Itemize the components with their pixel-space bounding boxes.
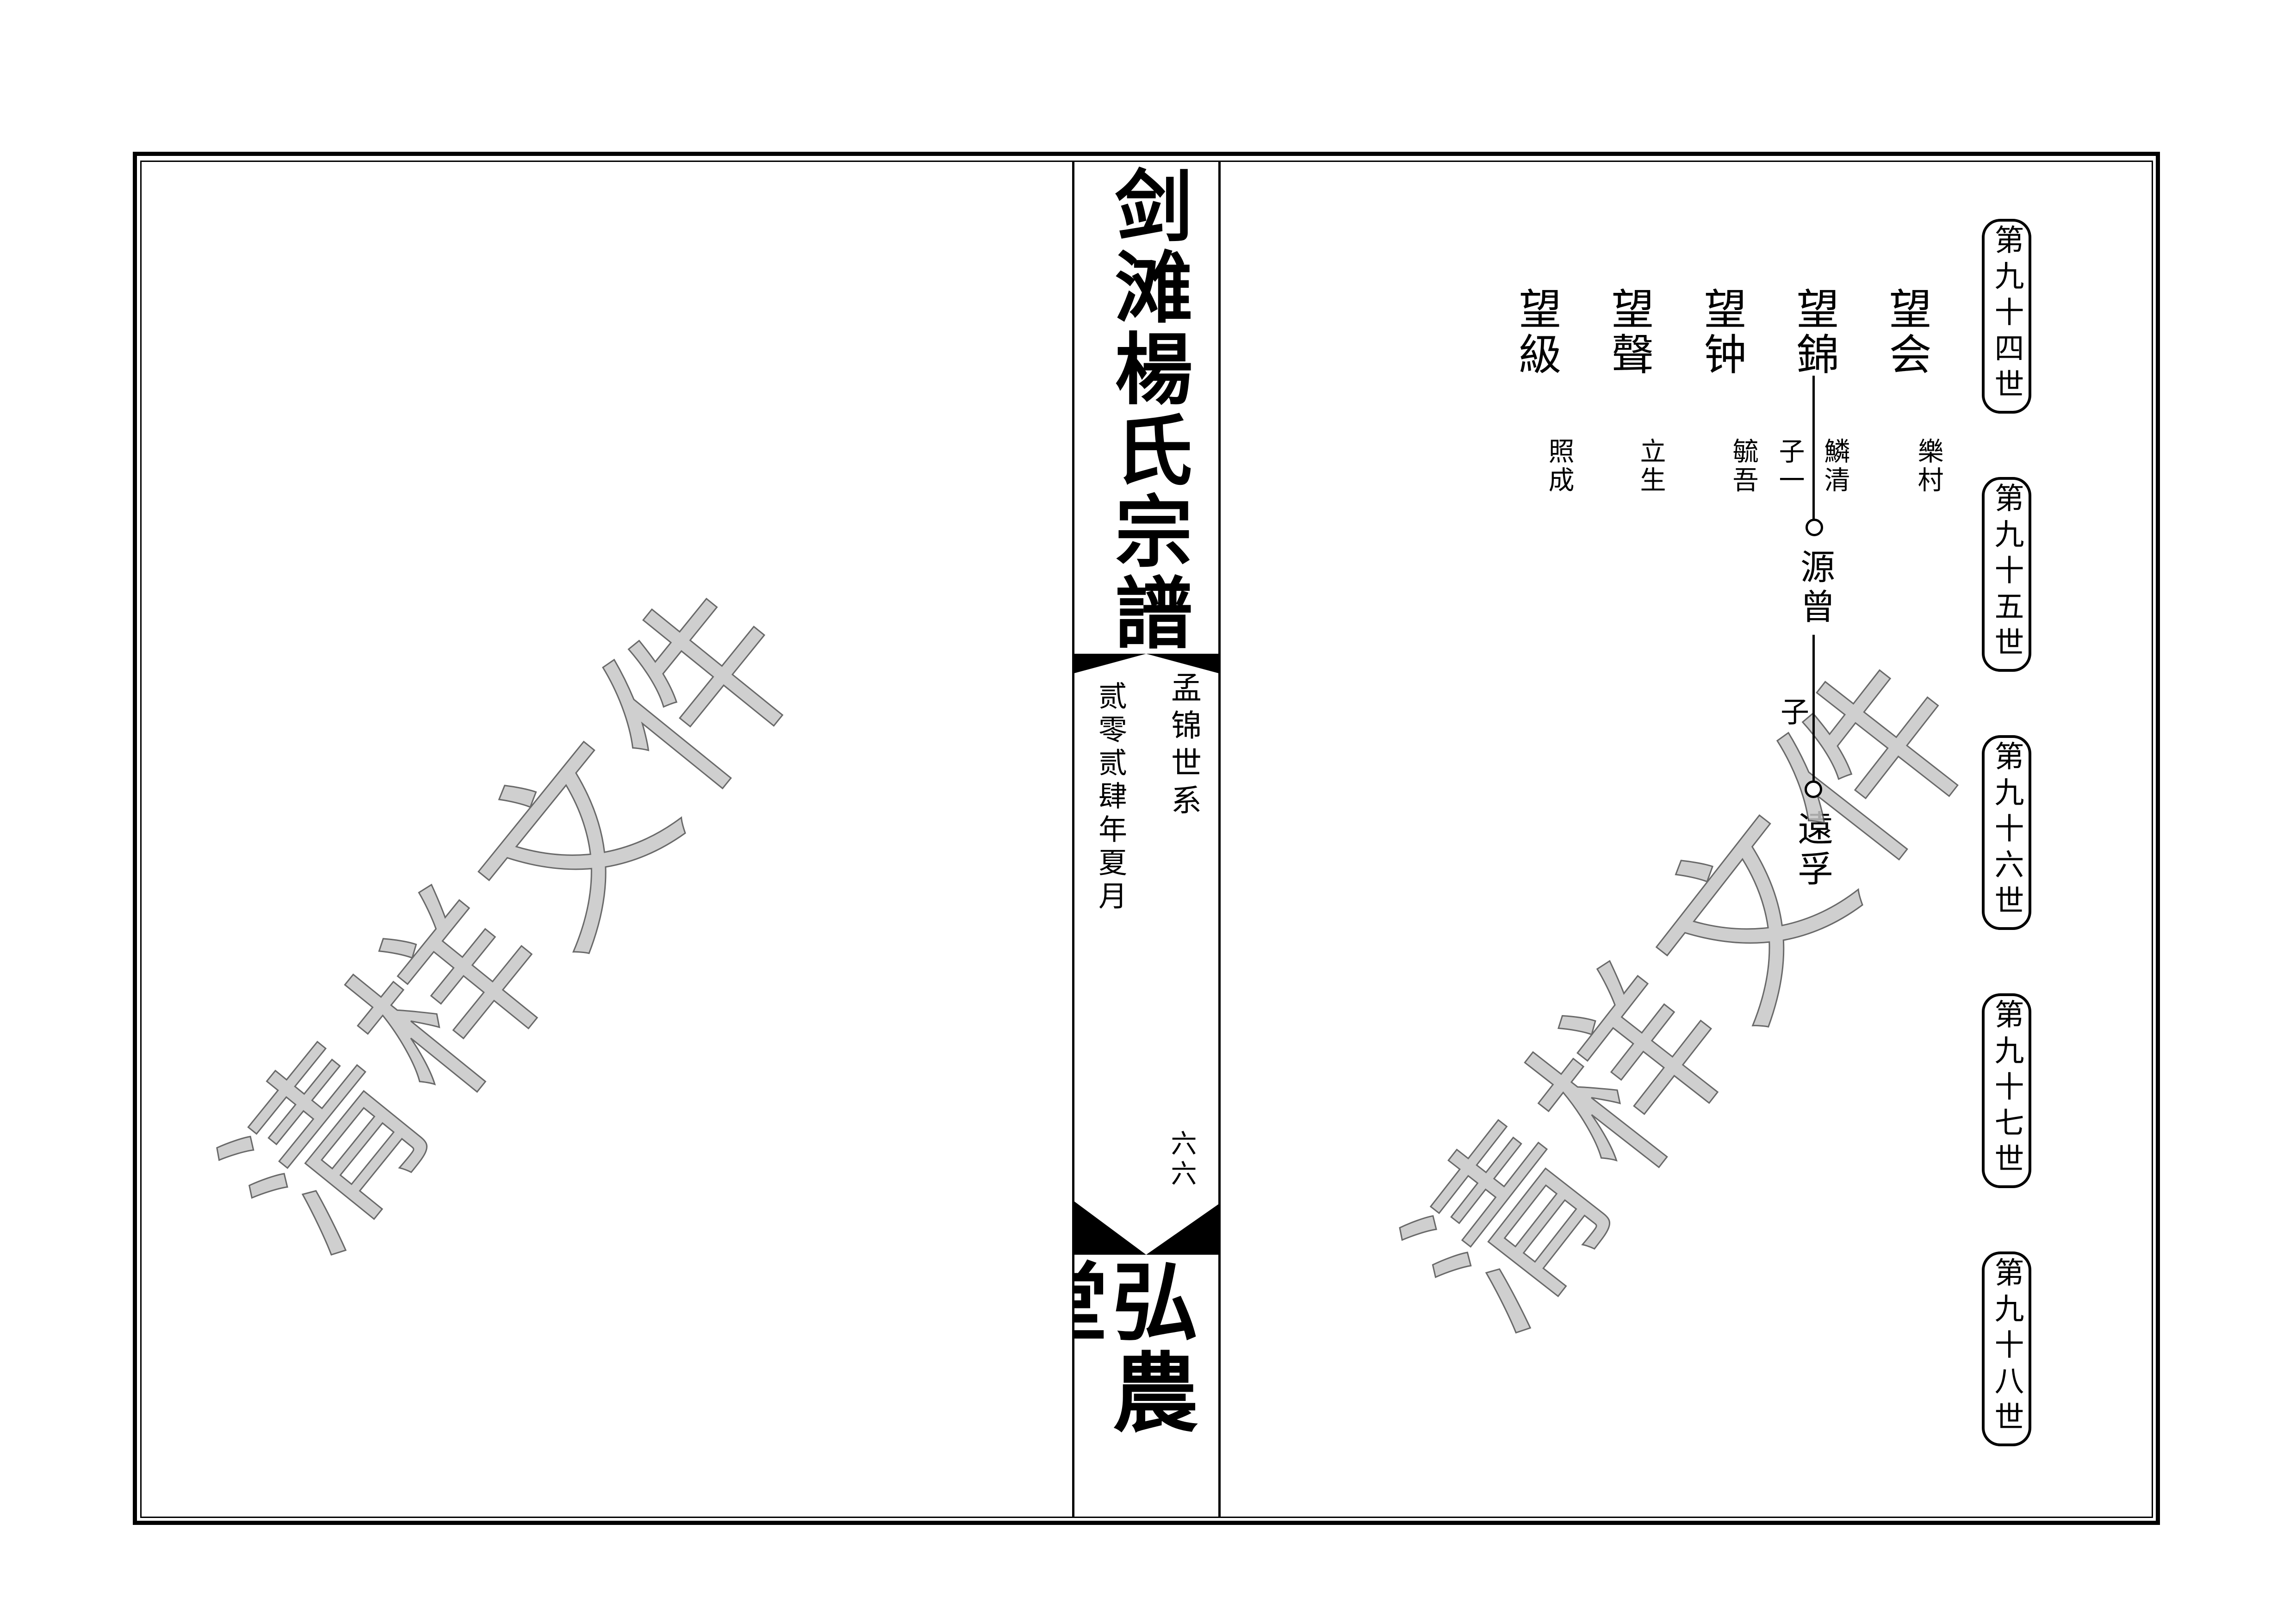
spine-date-label: 贰零贰肆年夏月 bbox=[1095, 681, 1124, 914]
person-name: 望級 bbox=[1513, 287, 1559, 378]
courtesy-name: 子一 bbox=[1776, 438, 1803, 495]
person-name: 望会 bbox=[1883, 287, 1930, 378]
descendant-name: 遠孚 bbox=[1794, 810, 1831, 891]
descent-line bbox=[1812, 635, 1815, 782]
spine-hall-name-clip: 弘農堂 bbox=[1074, 1256, 1219, 1518]
spine-lineage-label: 孟锦世系 bbox=[1167, 672, 1199, 822]
generation-label: 第九十七世 bbox=[1986, 999, 2028, 1185]
generation-label: 第九十五世 bbox=[1986, 483, 2028, 669]
person-name: 望聲 bbox=[1606, 287, 1652, 378]
generation-label: 第九十四世 bbox=[1986, 224, 2028, 411]
node-circle-icon bbox=[1805, 781, 1822, 798]
person-name: 望钟 bbox=[1698, 287, 1744, 378]
generation-label-box: 第九十六世 bbox=[1982, 735, 2031, 930]
generation-label-box: 第九十五世 bbox=[1982, 477, 2031, 672]
descent-line bbox=[1812, 376, 1815, 519]
courtesy-name: 照成 bbox=[1545, 438, 1572, 495]
genealogy-page-spread: 清样文件 剑滩楊氏宗譜 孟锦世系 贰零贰肆年夏月 六六 弘農堂 望会 望錦 望钟… bbox=[0, 0, 2296, 1623]
spine-page-number: 六六 bbox=[1168, 1130, 1195, 1190]
generation-label-box: 第九十四世 bbox=[1982, 219, 2031, 414]
node-circle-icon bbox=[1806, 519, 1823, 536]
spine-hall-name: 弘農堂 bbox=[1101, 1257, 1192, 1518]
courtesy-name: 樂村 bbox=[1915, 438, 1942, 495]
courtesy-name: 毓吾 bbox=[1730, 438, 1756, 495]
generation-label: 第九十八世 bbox=[1986, 1257, 2028, 1443]
person-name: 望錦 bbox=[1791, 287, 1837, 378]
spine-title: 剑滩楊氏宗譜 bbox=[1092, 166, 1200, 654]
courtesy-name: 鱗清 bbox=[1821, 438, 1848, 495]
generation-label: 第九十六世 bbox=[1986, 741, 2028, 927]
descendant-side-note: 子 bbox=[1777, 697, 1806, 725]
courtesy-name: 立生 bbox=[1637, 438, 1664, 495]
generation-label-box: 第九十八世 bbox=[1982, 1251, 2031, 1446]
descendant-name: 源曾 bbox=[1795, 549, 1832, 628]
generation-label-box: 第九十七世 bbox=[1982, 993, 2031, 1188]
